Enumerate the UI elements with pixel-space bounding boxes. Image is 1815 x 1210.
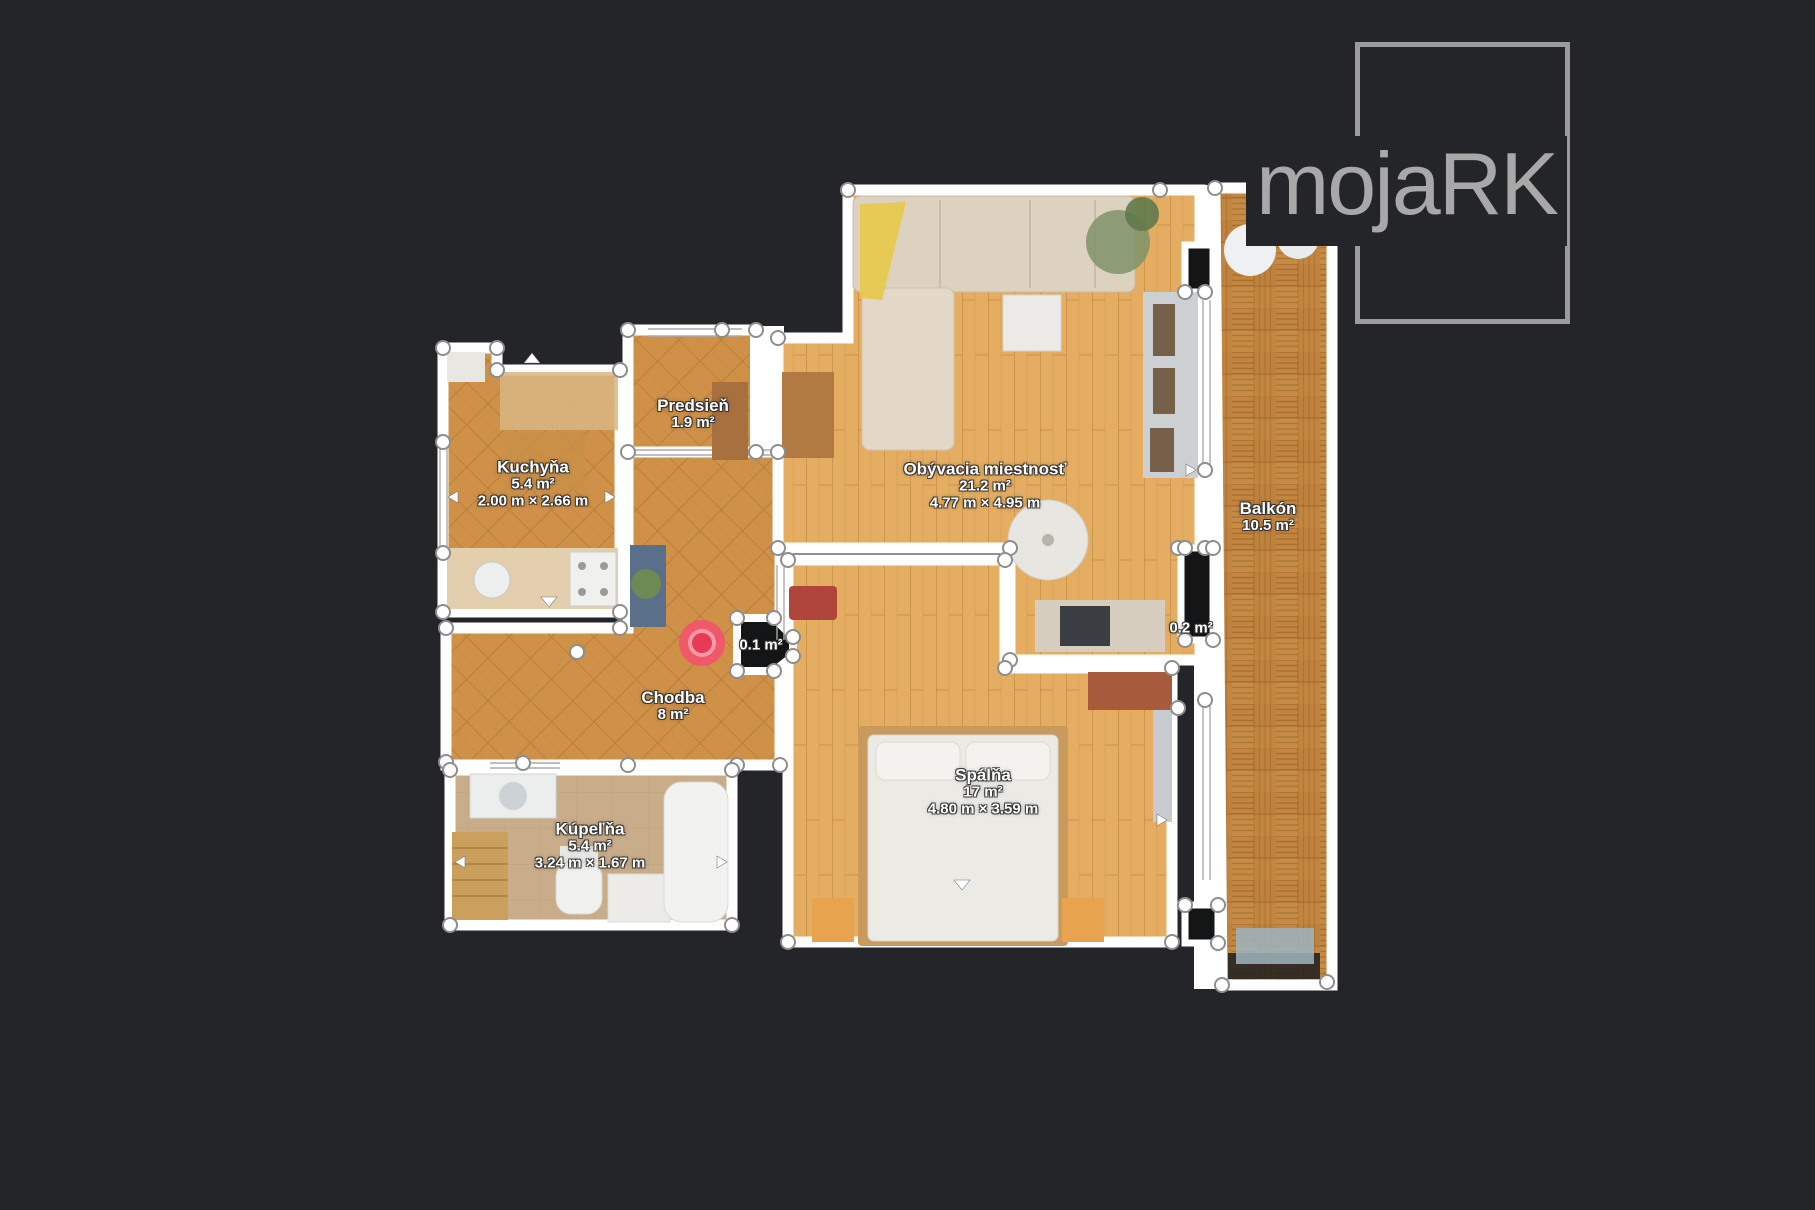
dresser [1088,672,1172,710]
round-table-center [1042,534,1054,546]
stove-burner [578,562,586,570]
stove-burner [600,588,608,596]
nightstand-right [1062,898,1104,942]
washer-door [499,782,527,810]
plant-2 [1125,197,1159,231]
shaft-top [1185,245,1213,292]
pillow-left [876,742,960,780]
kitchen-cabinets [500,372,618,430]
coffee-table [1003,295,1061,351]
floorplan-canvas: Kuchyňa 5.4 m² 2.00 m × 2.66 m Predsieň … [0,0,1815,1210]
stove-black [1060,606,1110,646]
hall-plant [631,569,661,599]
bath-sink [608,874,670,922]
sideboard [782,372,834,458]
kitchen-stove [570,552,616,606]
stove-burner [578,588,586,596]
stove-burner [600,562,608,570]
balcony-item [1236,928,1314,964]
bathtub [664,782,728,922]
shaft-02m2 [1181,548,1213,640]
kitchen-sink [474,562,510,598]
wood-bench [452,832,508,920]
radiator-vent-1 [1153,304,1175,356]
hall-wardrobe [712,382,748,460]
pillow-right [966,742,1050,780]
nightstand-left [812,898,854,942]
kitchen-counter-topleft [447,352,485,382]
kitchen-island [505,432,585,490]
floor-balkon [1215,188,1332,985]
toilet [556,862,602,914]
logo-wordmark: mojaRK [1246,136,1567,246]
radiator-vent-3 [1150,428,1174,472]
red-chair [789,586,837,620]
radiator-vent-2 [1153,368,1175,414]
sofa-chaise [862,288,954,450]
scan-position-marker[interactable] [679,620,725,666]
